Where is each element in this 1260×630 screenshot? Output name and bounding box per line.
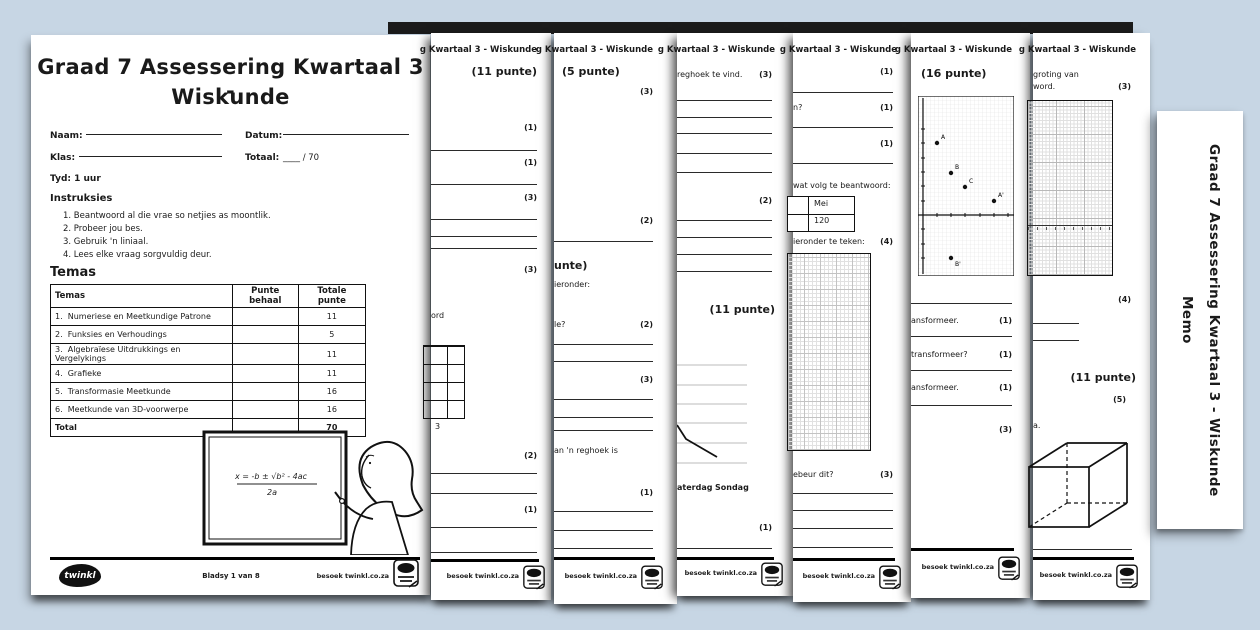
row-behaal bbox=[232, 365, 298, 383]
twinkl-badge-icon bbox=[1116, 564, 1138, 590]
data-table: Mei 120 bbox=[787, 196, 855, 232]
mark-value: (1) bbox=[524, 158, 537, 167]
totaal-value: ____ / 70 bbox=[283, 153, 319, 163]
text-fragment: transformeer? bbox=[911, 350, 968, 359]
coordinate-plane: A B C A' B' bbox=[918, 96, 1014, 276]
table-row: 2. Funksies en Verhoudings 5 bbox=[51, 326, 366, 344]
twinkl-badge-icon bbox=[998, 556, 1020, 582]
mark-value: (2) bbox=[759, 196, 772, 205]
klas-label: Klas: bbox=[50, 153, 75, 163]
totaal-label: Totaal: bbox=[245, 153, 279, 163]
row-behaal bbox=[232, 383, 298, 401]
worksheet-page-1: Graad 7 Assessering Kwartaal 3 - Wiskund… bbox=[31, 35, 430, 595]
twinkl-badge-icon bbox=[761, 562, 783, 588]
mark-value: (2) bbox=[524, 451, 537, 460]
row-behaal bbox=[232, 308, 298, 326]
worksheet-page-4: g Kwartaal 3 - Wiskunde reghoek te vind.… bbox=[677, 33, 793, 596]
footer-rule bbox=[677, 557, 774, 560]
mark-value: (1) bbox=[999, 316, 1012, 325]
mark-value: (4) bbox=[880, 237, 893, 246]
instruction-item: 3. Gebruik 'n liniaal. bbox=[63, 237, 148, 247]
mark-value: (3) bbox=[999, 425, 1012, 434]
mark-value: (1) bbox=[524, 505, 537, 514]
text-fragment: reghoek te vind. bbox=[677, 70, 742, 79]
temas-table: Temas Punte behaal Totale punte 1. Numer… bbox=[50, 284, 366, 437]
section-points: (16 punte) bbox=[921, 67, 986, 80]
worksheet-page-7: g Kwartaal 3 - Wiskunde groting van word… bbox=[1033, 33, 1150, 600]
memo-tab[interactable]: Graad 7 Assessering Kwartaal 3 - Wiskund… bbox=[1157, 111, 1243, 529]
row-totaal: 5 bbox=[298, 326, 365, 344]
mark-value: (1) bbox=[880, 103, 893, 112]
mark-value: (3) bbox=[640, 375, 653, 384]
mark-value: (5) bbox=[1113, 395, 1126, 404]
mark-value: (1) bbox=[999, 383, 1012, 392]
text-fragment: le? bbox=[554, 320, 565, 329]
text-fragment: ieronder: bbox=[554, 280, 590, 289]
col-totale-punte: Totale punte bbox=[298, 285, 365, 308]
page-header-fragment: g Kwartaal 3 - Wiskunde bbox=[658, 45, 775, 55]
whiteboard-formula: x = -b ± √b² - 4ac bbox=[234, 472, 308, 481]
point-label: B bbox=[955, 164, 959, 171]
worksheet-page-3: g Kwartaal 3 - Wiskunde (5 punte) (3) (2… bbox=[554, 33, 677, 604]
table-row: 4. Grafieke 11 bbox=[51, 365, 366, 383]
whiteboard-formula-denominator: 2a bbox=[267, 488, 277, 497]
teacher-whiteboard-illustration: x = -b ± √b² - 4ac 2a bbox=[201, 427, 429, 555]
section-points: (11 punte) bbox=[1071, 371, 1136, 384]
mark-value: (1) bbox=[880, 139, 893, 148]
row-tema: Transformasie Meetkunde bbox=[68, 387, 171, 396]
visit-link: besoek twinkl.co.za bbox=[447, 572, 519, 580]
footer-rule bbox=[911, 548, 1014, 551]
row-tema: Funksies en Verhoudings bbox=[68, 330, 167, 339]
mark-value: (3) bbox=[640, 87, 653, 96]
text-fragment: wat volg te beantwoord: bbox=[793, 181, 891, 190]
twinkl-badge-icon bbox=[393, 559, 419, 589]
datum-label: Datum: bbox=[245, 131, 282, 141]
footer-rule bbox=[431, 559, 539, 562]
x-axis-label: Sondag bbox=[715, 483, 749, 492]
twinkl-badge-icon bbox=[523, 565, 545, 591]
row-tema: Numeriese en Meetkundige Patrone bbox=[68, 312, 211, 321]
table-row: 5. Transformasie Meetkunde 16 bbox=[51, 383, 366, 401]
instruction-item: 2. Probeer jou bes. bbox=[63, 224, 143, 234]
instruksies-heading: Instruksies bbox=[50, 193, 112, 204]
text-fragment: ansformeer. bbox=[911, 316, 959, 325]
mark-value: (3) bbox=[880, 470, 893, 479]
mark-value: (1) bbox=[640, 488, 653, 497]
table-row: 1. Numeriese en Meetkundige Patrone 11 bbox=[51, 308, 366, 326]
text-fragment: ord bbox=[431, 311, 444, 320]
table-cell: Mei bbox=[814, 199, 828, 208]
page-header-fragment: g Kwartaal 3 - Wiskunde bbox=[420, 45, 537, 55]
row-behaal bbox=[232, 344, 298, 365]
row-tema: Grafieke bbox=[68, 369, 102, 378]
col-punte-behaal: Punte behaal bbox=[232, 285, 298, 308]
worksheet-page-6: g Kwartaal 3 - Wiskunde (16 punte) bbox=[911, 33, 1030, 598]
instruction-item: 4. Lees elke vraag sorgvuldig deur. bbox=[63, 250, 212, 260]
row-totaal: 11 bbox=[298, 344, 365, 365]
text-fragment: an 'n reghoek is bbox=[554, 446, 618, 455]
mark-value: (1) bbox=[524, 123, 537, 132]
mark-value: (3) bbox=[524, 265, 537, 274]
point-label: A' bbox=[998, 192, 1004, 199]
visit-link: besoek twinkl.co.za bbox=[565, 572, 637, 580]
row-tema: Algebraïese Uitdrukkings en Vergelykings bbox=[55, 345, 180, 363]
row-num: 1. bbox=[55, 312, 63, 321]
mark-value: (2) bbox=[640, 216, 653, 225]
row-behaal bbox=[232, 401, 298, 419]
mark-value: (3) bbox=[524, 193, 537, 202]
table-header-row: Temas Punte behaal Totale punte bbox=[51, 285, 366, 308]
row-totaal: 16 bbox=[298, 401, 365, 419]
row-num: 2. bbox=[55, 330, 63, 339]
section-points: (11 punte) bbox=[710, 303, 775, 316]
section-points: (5 punte) bbox=[562, 65, 620, 78]
temas-heading: Temas bbox=[50, 265, 96, 280]
twinkl-badge-icon bbox=[879, 565, 901, 591]
grid-caption: 3 bbox=[435, 422, 440, 431]
footer-rule bbox=[50, 557, 420, 560]
cube-diagram bbox=[1025, 439, 1137, 535]
page-header-fragment: g Kwartaal 3 - Wiskunde bbox=[895, 45, 1012, 55]
row-totaal: 11 bbox=[298, 308, 365, 326]
twinkl-logo: twinkl bbox=[59, 564, 101, 587]
row-num: 3. bbox=[55, 345, 63, 354]
mark-value: (1) bbox=[880, 67, 893, 76]
table-cell: 120 bbox=[814, 216, 829, 225]
graph-paper-grid bbox=[787, 253, 871, 451]
klas-field bbox=[79, 145, 222, 157]
mark-value: (4) bbox=[1118, 295, 1131, 304]
naam-field bbox=[86, 123, 222, 135]
visit-link: besoek twinkl.co.za bbox=[803, 572, 875, 580]
row-tema: Meetkunde van 3D-voorwerpe bbox=[68, 405, 189, 414]
mark-value: (1) bbox=[759, 523, 772, 532]
tyd-label: Tyd: 1 uur bbox=[50, 174, 101, 184]
text-fragment: word. bbox=[1033, 82, 1055, 91]
page-header-fragment: g Kwartaal 3 - Wiskunde bbox=[536, 45, 653, 55]
memo-tab-title: Graad 7 Assessering Kwartaal 3 - Wiskund… bbox=[1200, 144, 1227, 497]
row-num: 5. bbox=[55, 387, 63, 396]
row-behaal bbox=[232, 326, 298, 344]
point-label: C bbox=[969, 178, 973, 185]
section-points-fragment: unte) bbox=[554, 259, 587, 272]
text-fragment: ieronder te teken: bbox=[793, 237, 865, 246]
page-title-line2: Wiskunde bbox=[31, 85, 430, 109]
worksheet-page-5: g Kwartaal 3 - Wiskunde (1) n? (1) (1) w… bbox=[793, 33, 911, 602]
col-temas: Temas bbox=[51, 285, 233, 308]
answer-grid bbox=[423, 345, 465, 419]
row-totaal: 11 bbox=[298, 365, 365, 383]
datum-field bbox=[283, 123, 409, 135]
mark-value: (3) bbox=[1118, 82, 1131, 91]
section-points: (11 punte) bbox=[472, 65, 537, 78]
footer-rule bbox=[554, 557, 655, 560]
resource-preview: Graad 7 Assessering Kwartaal 3 - Wiskund… bbox=[0, 0, 1260, 630]
visit-link: besoek twinkl.co.za bbox=[1040, 571, 1112, 579]
mark-value: (2) bbox=[640, 320, 653, 329]
footer-rule bbox=[1033, 557, 1134, 560]
footer-rule bbox=[793, 558, 895, 561]
worksheet-page-2: g Kwartaal 3 - Wiskunde (11 punte) (1) (… bbox=[431, 33, 551, 600]
text-fragment: ansformeer. bbox=[911, 383, 959, 392]
mark-value: (1) bbox=[999, 350, 1012, 359]
visit-link: besoek twinkl.co.za bbox=[299, 572, 389, 580]
mark-value: (3) bbox=[759, 70, 772, 79]
instruction-item: 1. Beantwoord al die vrae so netjies as … bbox=[63, 211, 271, 221]
text-fragment: groting van bbox=[1033, 70, 1079, 79]
page-header-fragment: g Kwartaal 3 - Wiskunde bbox=[1019, 45, 1136, 55]
point-label: B' bbox=[955, 261, 961, 268]
visit-link: besoek twinkl.co.za bbox=[922, 563, 994, 571]
text-fragment: ebeur dit? bbox=[793, 470, 834, 479]
line-graph bbox=[677, 363, 749, 465]
page-header-fragment: g Kwartaal 3 - Wiskunde bbox=[780, 45, 897, 55]
twinkl-badge-icon bbox=[641, 565, 663, 591]
page-number: Bladsy 1 van 8 bbox=[151, 572, 311, 580]
memo-tab-subtitle: Memo bbox=[1173, 144, 1200, 497]
text-fragment: a. bbox=[1033, 421, 1040, 430]
graph-paper-grid bbox=[1027, 100, 1113, 276]
visit-link: besoek twinkl.co.za bbox=[685, 569, 757, 577]
naam-label: Naam: bbox=[50, 131, 83, 141]
row-num: 4. bbox=[55, 369, 63, 378]
row-totaal: 16 bbox=[298, 383, 365, 401]
text-fragment: n? bbox=[793, 103, 802, 112]
table-row: 3. Algebraïese Uitdrukkings en Vergelyki… bbox=[51, 344, 366, 365]
table-row: 6. Meetkunde van 3D-voorwerpe 16 bbox=[51, 401, 366, 419]
row-num: 6. bbox=[55, 405, 63, 414]
x-axis-label: aterdag bbox=[677, 483, 712, 492]
